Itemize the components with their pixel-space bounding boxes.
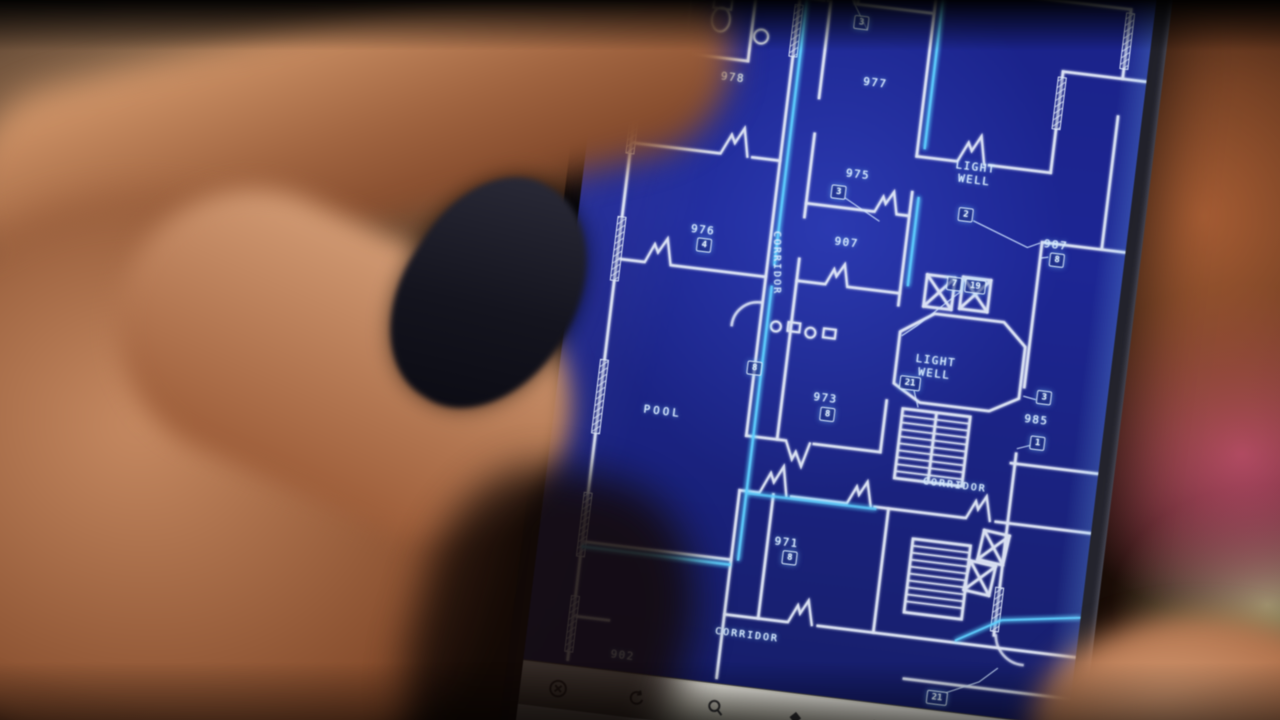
- plus-icon[interactable]: [854, 707, 894, 720]
- room-label-971: 971: [774, 534, 800, 550]
- callout-box-7: 7: [946, 276, 963, 292]
- callout-box-4: 4: [696, 237, 713, 253]
- stairs-center: [894, 409, 970, 487]
- room-label-987: 987: [1043, 237, 1069, 253]
- callout-box-8-973: 8: [819, 407, 836, 423]
- callout-box-8-971: 8: [781, 550, 798, 566]
- photo-scene: 978 977 3 LIGHT WELL 975 3 2 976 4 907 9…: [0, 0, 1280, 720]
- search-icon[interactable]: [696, 688, 736, 720]
- callout-box-3-right: 3: [1036, 390, 1053, 406]
- stairs-bottom: [904, 539, 971, 620]
- callout-box-1: 1: [1029, 435, 1046, 451]
- room-label-976: 976: [690, 222, 716, 238]
- room-label-985: 985: [1024, 412, 1050, 428]
- callout-box-3: 3: [830, 184, 847, 200]
- diamond-marker-icon[interactable]: [775, 698, 815, 720]
- elevator-shaft-icons-bottom: [963, 529, 1010, 598]
- callout-box-8-wall: 8: [746, 360, 763, 376]
- room-label-975: 975: [845, 166, 871, 182]
- leader-lines: [770, 0, 1082, 699]
- callout-box-21: 21: [899, 375, 921, 391]
- room-label-973: 973: [813, 390, 839, 406]
- callout-box-19: 19: [964, 278, 986, 294]
- room-label-977: 977: [862, 75, 888, 91]
- callout-box-21-bottom: 21: [926, 690, 948, 706]
- callout-box-2: 2: [957, 207, 974, 223]
- callout-box-3-top: 3: [853, 15, 870, 31]
- room-label-907: 907: [834, 235, 860, 251]
- callout-box-8-987: 8: [1049, 252, 1066, 268]
- corridor-label-west: CORRIDOR: [771, 231, 782, 295]
